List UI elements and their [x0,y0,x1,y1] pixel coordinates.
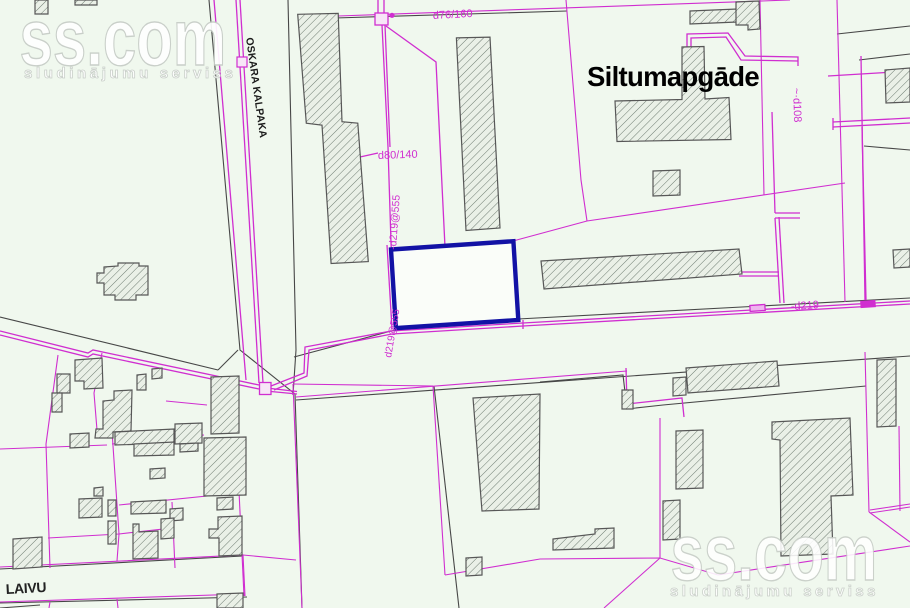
svg-text:sludinājumu serviss: sludinājumu serviss [24,65,237,82]
svg-text:d80/140: d80/140 [378,149,418,162]
svg-text:Siltumapgāde: Siltumapgāde [587,61,759,92]
svg-text:LAIVU: LAIVU [5,579,46,597]
svg-text:sludinājumu serviss: sludinājumu serviss [670,583,879,600]
svg-text:-d219: -d219 [790,299,819,313]
svg-text:~·d108: ~·d108 [790,88,803,123]
svg-text:d76/160: d76/160 [433,8,473,22]
